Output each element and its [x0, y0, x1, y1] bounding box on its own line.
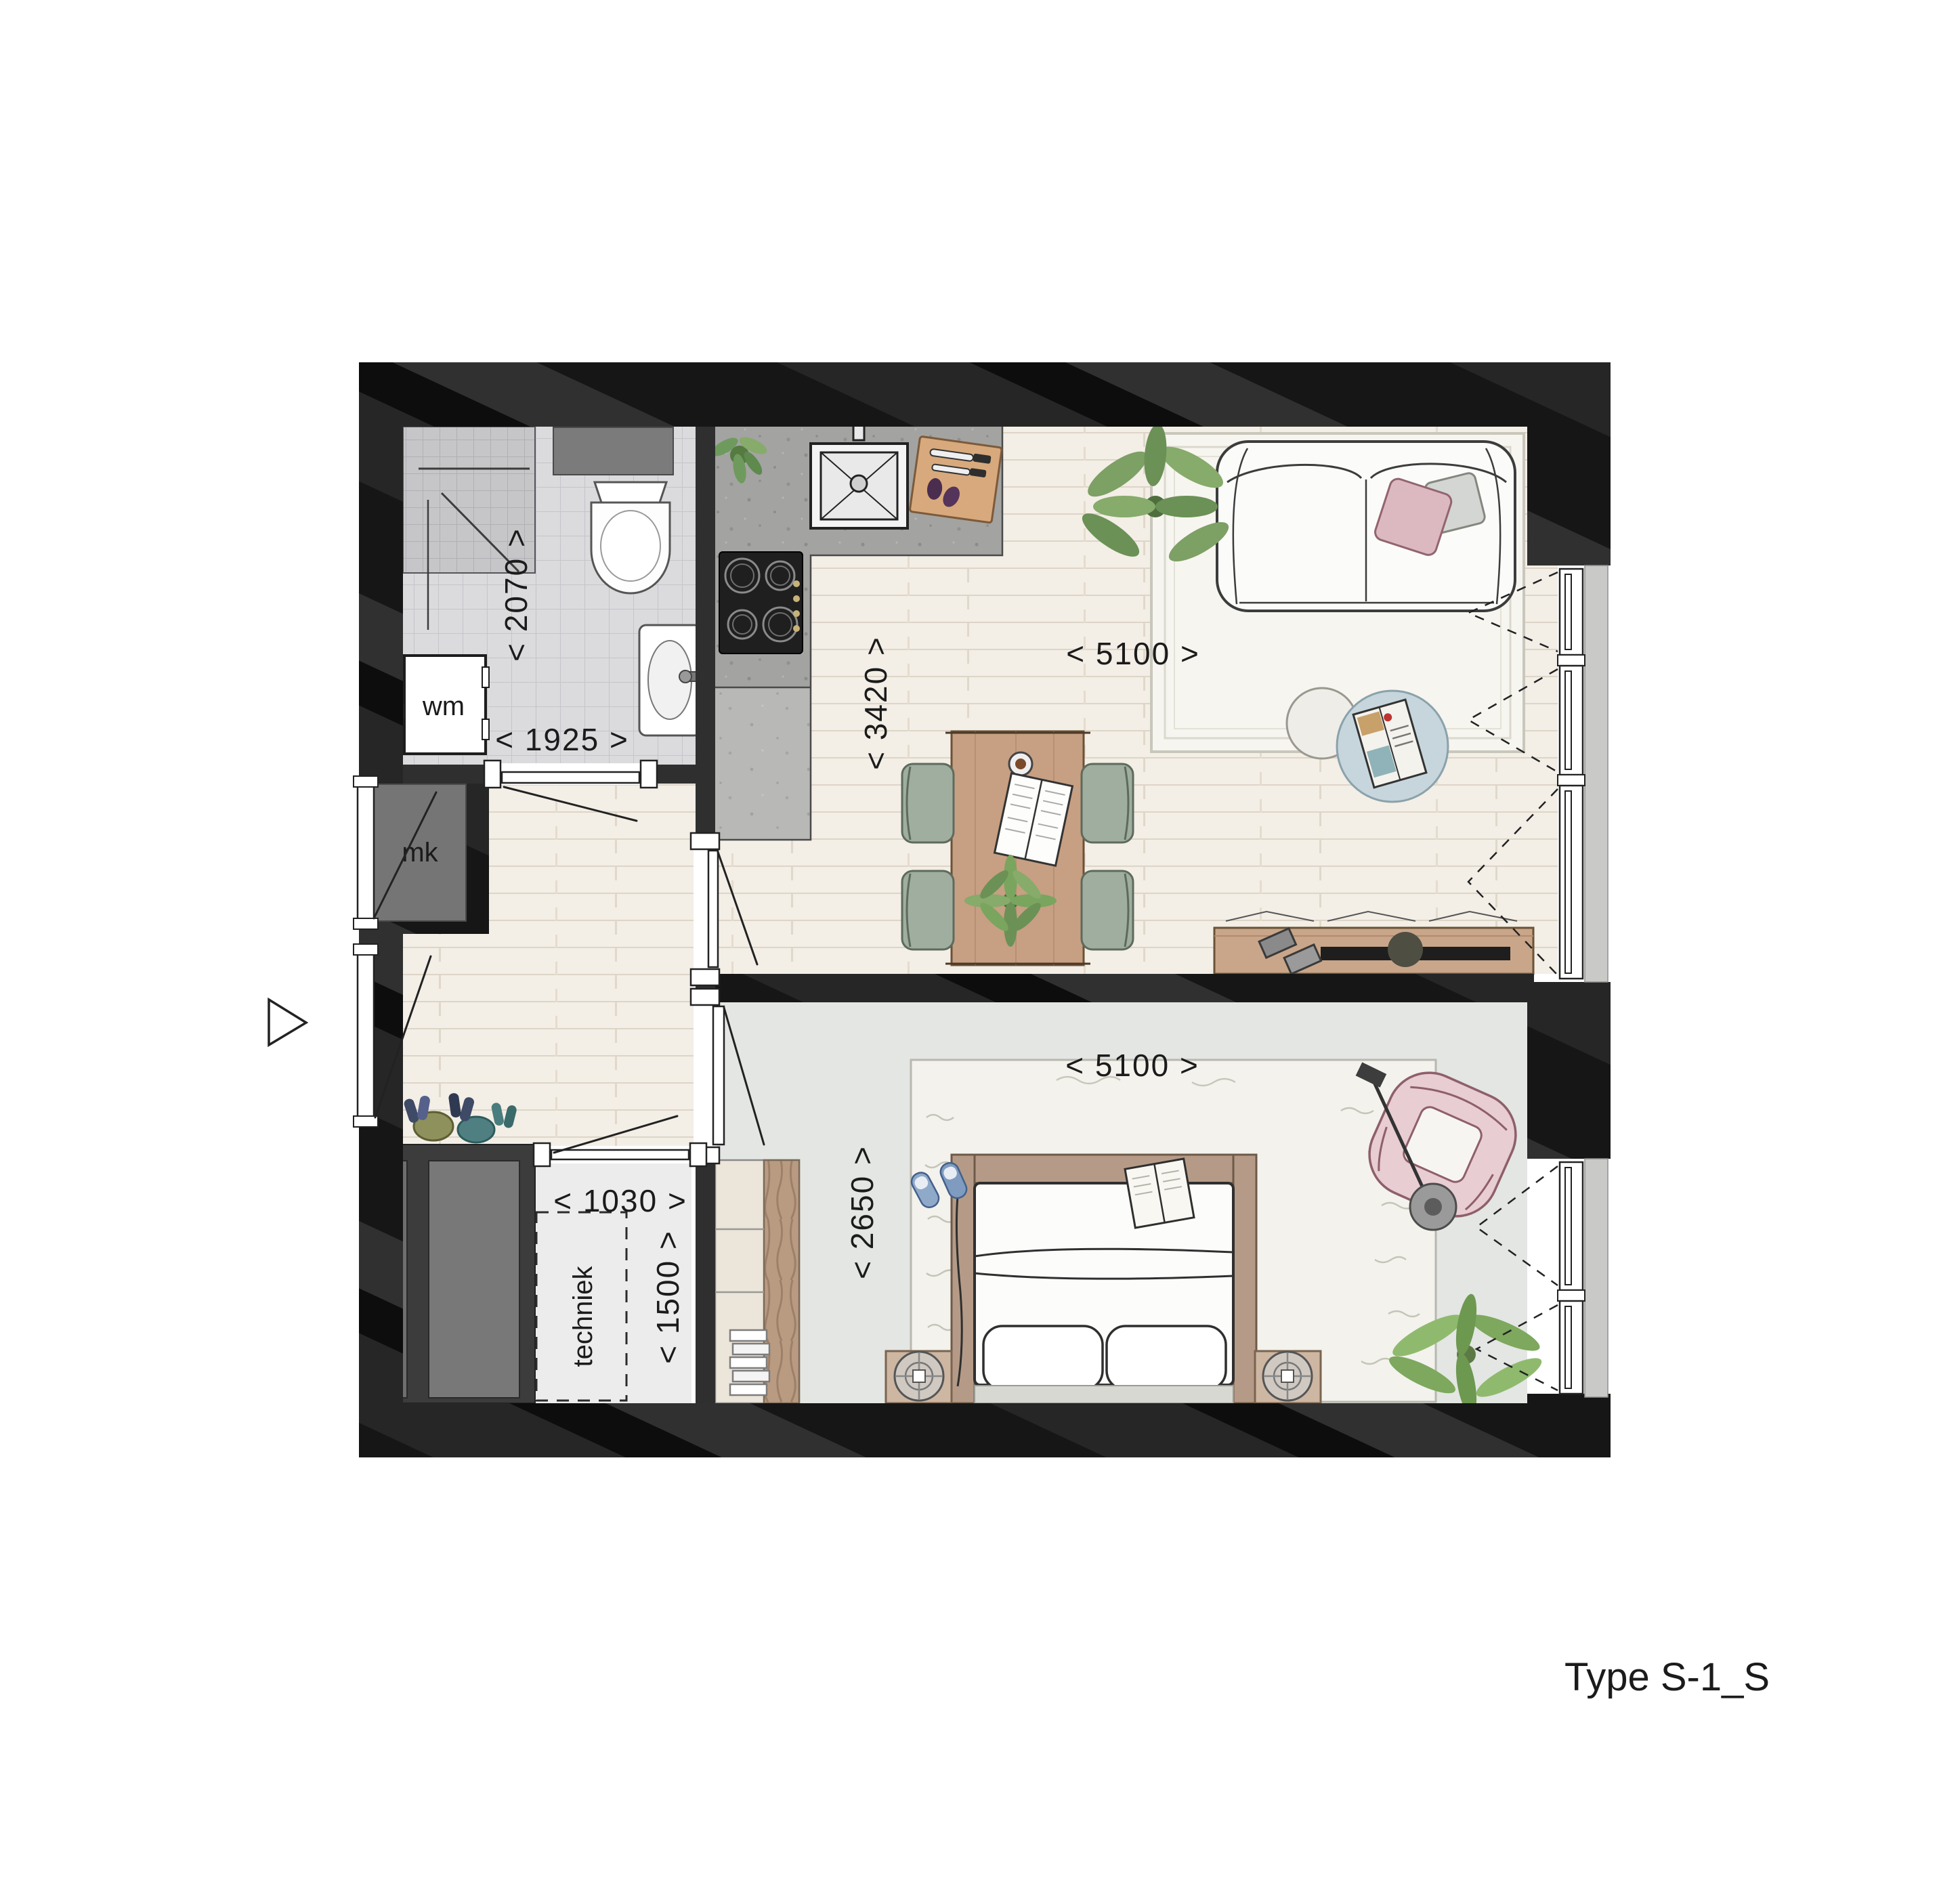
cutting-board-icon [910, 436, 1002, 523]
chair [902, 871, 954, 949]
wall-bathroom-east [696, 427, 715, 848]
bed-book-icon [1125, 1159, 1194, 1228]
dim-bath-width: < 1925 > [495, 722, 629, 757]
nightstand [886, 1351, 952, 1403]
chair [902, 764, 954, 842]
coffee-table-blue [1337, 691, 1448, 802]
floor-plan-page: wm [0, 0, 1960, 1880]
wm-label: wm [422, 691, 465, 721]
floor-plan-svg: wm [0, 0, 1960, 1880]
wall-tech-east [696, 1150, 715, 1403]
toilet-icon [591, 482, 670, 593]
entrance-arrow-icon [269, 1000, 306, 1045]
window-sill [1585, 565, 1608, 982]
wall-right-mid [1527, 982, 1611, 1159]
window-sill [1585, 1159, 1608, 1397]
bed-pillow [1107, 1326, 1226, 1390]
kitchen-cabinet-low [715, 687, 811, 840]
chair [1082, 764, 1133, 842]
dim-tech-depth: < 1500 > [650, 1230, 685, 1364]
duct-niche [553, 427, 673, 475]
wall-right-lower [1527, 1394, 1611, 1457]
hall-closet [383, 1145, 535, 1403]
dim-living-width: < 5100 > [1066, 636, 1200, 671]
bedroom-wardrobe [715, 1160, 799, 1403]
speaker-round-icon [1388, 932, 1423, 967]
meter-cupboard: mk [374, 784, 466, 921]
bed [952, 1155, 1256, 1403]
sofa [1217, 442, 1515, 611]
wall-bottom [359, 1403, 1611, 1457]
wardrobe-shelves-icon [730, 1330, 769, 1395]
wall-divider-living-bedroom [715, 974, 1534, 1002]
dim-shower-depth: < 2070 > [498, 528, 534, 662]
tech-room-label: techniek [568, 1266, 598, 1367]
dim-kitchen-depth: < 3420 > [858, 636, 893, 770]
washing-machine: wm [398, 656, 489, 754]
wall-right-upper [1527, 427, 1611, 565]
dim-tech-width: < 1030 > [553, 1183, 687, 1218]
cooktop-icon [719, 552, 803, 654]
dining-table [945, 731, 1090, 965]
plan-title: Type S-1_S [1564, 1655, 1770, 1699]
bed-pillow [983, 1326, 1103, 1390]
cup-icon [1009, 752, 1032, 775]
chair [1082, 871, 1133, 949]
dim-bedroom-depth: < 2650 > [845, 1145, 880, 1279]
wall-top [359, 362, 1611, 427]
nightstand [1255, 1351, 1321, 1403]
bed-headboard [952, 1155, 1256, 1183]
dim-bedroom-width: < 5100 > [1065, 1048, 1199, 1083]
